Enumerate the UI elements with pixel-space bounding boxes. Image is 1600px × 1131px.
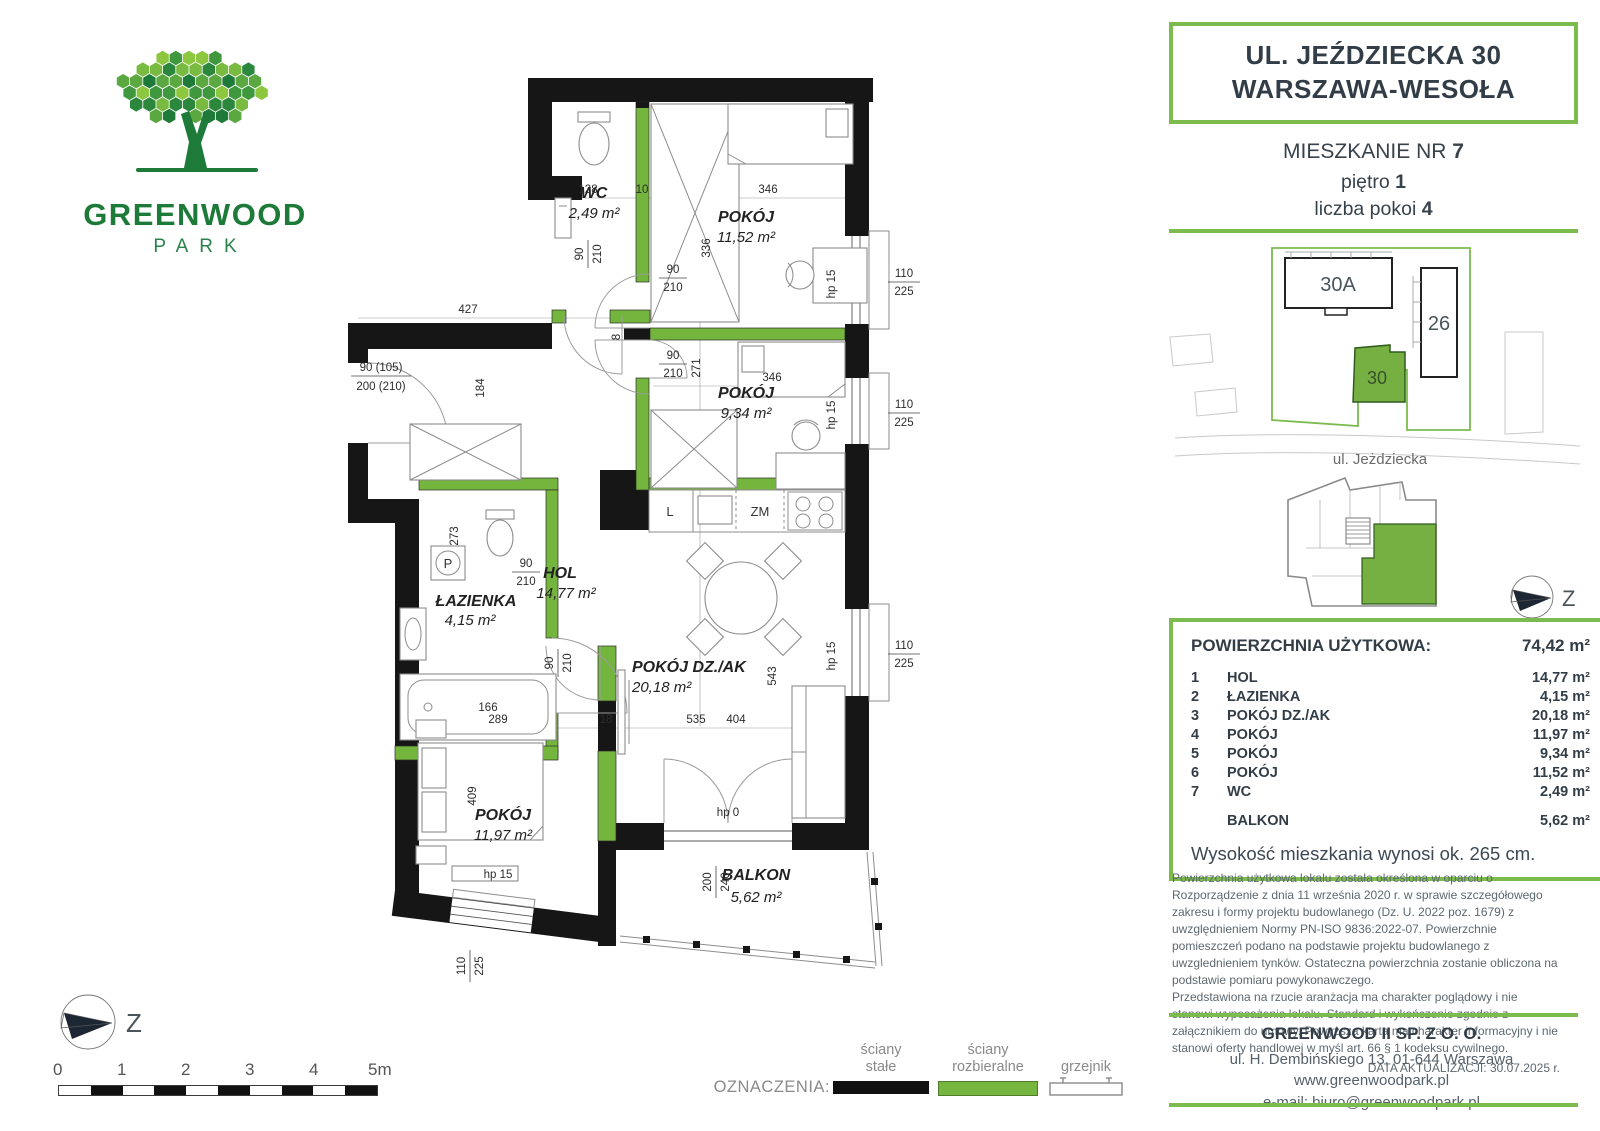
svg-text:18: 18 [600,714,613,726]
nightstand-2 [416,846,446,864]
compass-main: Z [48,982,198,1062]
svg-text:225: 225 [894,286,913,298]
svg-text:30A: 30A [1320,274,1356,296]
fridge-label: L [666,504,673,519]
bed-room4 [418,743,543,840]
svg-text:210: 210 [663,282,682,294]
toilet-tank [578,112,610,122]
divider-top [1169,229,1578,233]
address-box: UL. JEŹDZIECKA 30 WARSZAWA-WESOŁA [1169,22,1578,124]
svg-text:hp 15: hp 15 [826,270,838,299]
svg-text:11,97 m²: 11,97 m² [474,827,533,844]
table-row: 6POKÓJ11,52 m² [1191,764,1590,783]
table-row: 2ŁAZIENKA4,15 m² [1191,688,1590,707]
svg-text:hp 15: hp 15 [826,642,838,671]
solid-wall-swatch [833,1081,929,1094]
demountable-wall-swatch [938,1081,1038,1096]
washing-machine: P [431,546,465,580]
apartment-card-page: GREENWOOD PARK [0,0,1600,1131]
slanted-exterior-wall [392,882,615,943]
compass-north-label: Z [1562,586,1575,611]
rooms-count-line: liczba pokoi 4 [1169,198,1578,221]
divider-bottom [1169,1103,1578,1107]
company-footer: GREENWOOD II SP. Z O. O. ul. H. Dembińsk… [1169,1024,1574,1113]
svg-text:535: 535 [686,714,705,726]
table-row: 7WC2,49 m² [1191,783,1590,802]
legend-solid-walls: ściany stałe [833,1042,929,1094]
nightstand-1 [416,720,446,738]
floor-plan: P [348,78,940,1018]
address-line-2: WARSZAWA-WESOŁA [1173,73,1574,107]
svg-text:200: 200 [702,872,714,891]
svg-text:404: 404 [726,714,746,726]
sofa [792,686,845,818]
svg-text:210: 210 [592,244,604,263]
svg-text:225: 225 [894,417,913,429]
apartment-number-line: MIESZKANIE NR 7 [1169,140,1578,164]
svg-text:110: 110 [895,640,913,652]
svg-text:9,34 m²: 9,34 m² [721,405,773,422]
apartment-number-value: 7 [1452,140,1464,163]
apartment-number-label: MIESZKANIE NR [1283,140,1452,163]
wardrobe-hall [410,424,521,480]
svg-text:26: 26 [1428,313,1450,335]
table-row: 1HOL14,77 m² [1191,669,1590,688]
tree-ground [136,168,258,172]
svg-text:8: 8 [611,334,623,340]
svg-text:BALKON: BALKON [722,867,791,884]
svg-text:14,77 m²: 14,77 m² [536,585,596,602]
scale-bar [58,1085,378,1096]
svg-text:184: 184 [475,378,487,398]
svg-text:110: 110 [895,399,913,411]
svg-text:90 (105): 90 (105) [360,362,403,374]
svg-text:225: 225 [474,956,486,975]
svg-text:427: 427 [458,304,477,316]
svg-text:90: 90 [574,248,586,261]
svg-text:30: 30 [1367,368,1387,388]
website-link[interactable]: www.greenwoodpark.pl [1294,1072,1449,1089]
svg-text:5,62 m²: 5,62 m² [731,889,783,906]
area-table-header: POWIERZCHNIA UŻYTKOWA: 74,42 m² [1191,636,1590,656]
svg-text:210: 210 [516,576,535,588]
logo-subtitle: PARK [58,236,332,258]
svg-text:90: 90 [667,350,680,362]
svg-text:210: 210 [562,653,574,672]
building-26: 26 [1413,268,1457,377]
svg-text:hp 0: hp 0 [717,807,739,819]
company-name: GREENWOOD II SP. Z O. O. [1169,1024,1574,1044]
address-line-1: UL. JEŹDZIECKA 30 [1173,39,1574,73]
toilet [579,123,609,165]
table-row: 3POKÓJ DZ./AK20,18 m² [1191,707,1590,726]
svg-text:hp 15: hp 15 [484,869,513,881]
svg-text:346: 346 [762,372,781,384]
table-row: 5POKÓJ9,34 m² [1191,745,1590,764]
svg-text:289: 289 [488,714,507,726]
floor-line: piętro 1 [1169,171,1578,194]
room-wc-area: 2,49 m² [568,205,621,222]
svg-text:346: 346 [758,184,777,196]
tub-length: 166 [478,702,497,714]
svg-text:240: 240 [720,872,732,891]
radiator-icon [1047,1076,1125,1098]
dining-table [687,543,802,656]
desk-room5 [776,420,845,489]
legend-demountable-walls: ściany rozbieralne [938,1042,1038,1096]
svg-text:200 (210): 200 (210) [356,381,405,393]
svg-text:POKÓJ DZ./AK: POKÓJ DZ./AK [632,657,747,676]
svg-text:POKÓJ: POKÓJ [475,805,532,824]
svg-text:POKÓJ: POKÓJ [718,207,775,226]
divider-footer-top [1169,1013,1578,1017]
svg-text:128: 128 [578,184,597,196]
balcony-door [664,759,792,850]
legend-label: OZNACZENIA: [700,1078,830,1097]
kitchen-counter [649,490,845,532]
svg-text:HOL: HOL [543,565,577,582]
disclaimer-paragraph-1: Powierzchnia użytkowa lokalu została okr… [1172,870,1560,989]
bath-sink [400,608,426,660]
compass-north-label: Z [126,1008,142,1038]
svg-text:110: 110 [456,957,468,975]
table-row: 4POKÓJ11,97 m² [1191,726,1590,745]
site-map: 30A 26 30 ul. Jeżdziecka [1165,242,1585,472]
svg-text:POKÓJ: POKÓJ [718,383,775,402]
svg-text:543: 543 [767,666,779,685]
svg-text:273: 273 [449,526,461,545]
svg-text:20,18 m²: 20,18 m² [631,679,692,696]
svg-text:110: 110 [895,268,913,280]
svg-text:4,15 m²: 4,15 m² [445,612,497,629]
svg-text:225: 225 [894,658,913,670]
window-right-3 [845,604,889,701]
area-table: POWIERZCHNIA UŻYTKOWA: 74,42 m² 1HOL14,7… [1169,618,1600,881]
svg-text:P: P [444,556,453,571]
balcony-row: BALKON5,62 m² [1191,812,1590,831]
svg-text:90: 90 [667,264,680,276]
building-floor-overview [1250,458,1490,618]
greenwood-park-logo: GREENWOOD PARK [58,48,332,258]
svg-text:90: 90 [544,657,556,670]
svg-text:10: 10 [636,184,649,196]
building-30: 30 [1353,345,1405,402]
svg-text:336: 336 [701,238,713,257]
window-right-2 [845,373,889,449]
logo-tree-icon [58,48,332,188]
building-30a: 30A [1285,252,1392,315]
svg-text:210: 210 [663,368,682,380]
svg-text:hp 15: hp 15 [826,401,838,430]
svg-text:271: 271 [691,358,703,377]
svg-text:90: 90 [520,558,533,570]
height-note: Wysokość mieszkania wynosi ok. 265 cm. [1191,843,1590,865]
overview-stairs [1346,518,1370,544]
svg-text:11,52 m²: 11,52 m² [717,229,776,246]
svg-text:409: 409 [467,786,479,805]
company-address: ul. H. Dembińskiego 13, 01-644 Warszawa [1169,1049,1574,1070]
legend-radiator: grzejnik [1046,1059,1126,1104]
svg-text:ŁAZIENKA: ŁAZIENKA [435,593,517,610]
bed-room6 [728,104,853,164]
dishwasher-label: ZM [751,504,770,519]
area-table-title: POWIERZCHNIA UŻYTKOWA: [1191,636,1431,656]
bath-toilet [486,510,514,556]
logo-title: GREENWOOD [58,197,332,233]
area-table-total: 74,42 m² [1522,636,1590,656]
